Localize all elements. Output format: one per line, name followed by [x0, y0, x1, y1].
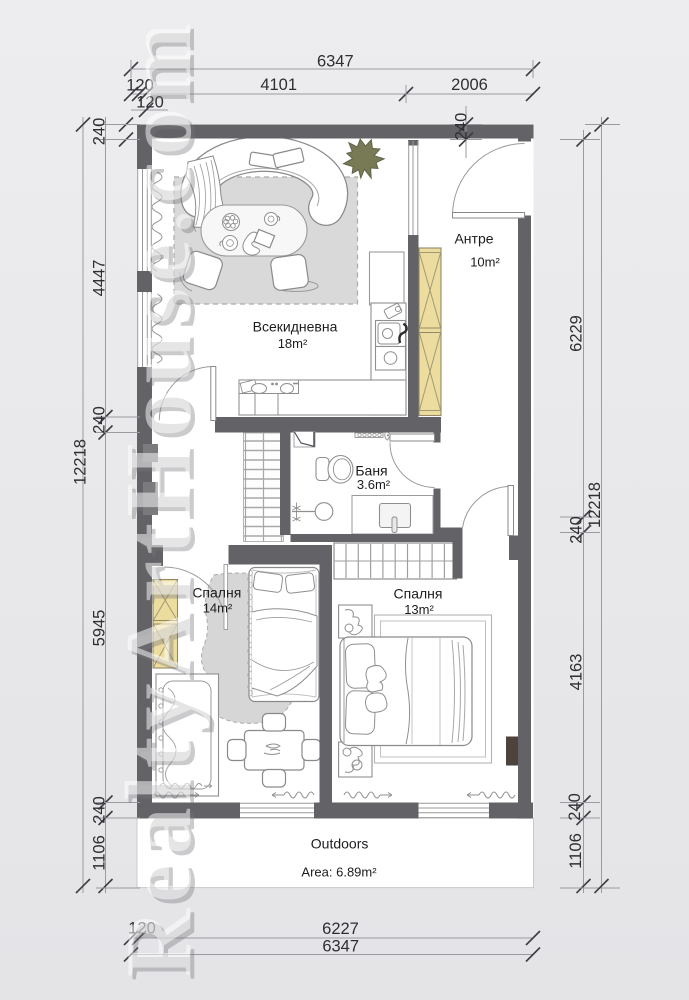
- svg-text:6347: 6347: [317, 53, 354, 71]
- svg-text:5945: 5945: [91, 610, 109, 647]
- svg-text:18m²: 18m²: [278, 336, 308, 351]
- svg-text:6227: 6227: [322, 920, 359, 938]
- svg-text:Area: 6.89m²: Area: 6.89m²: [301, 865, 377, 880]
- svg-text:Антре: Антре: [454, 231, 493, 247]
- svg-text:240: 240: [91, 406, 109, 434]
- svg-text:2006: 2006: [451, 76, 488, 94]
- svg-text:1106: 1106: [567, 833, 585, 868]
- svg-text:12218: 12218: [72, 439, 90, 485]
- svg-text:10m²: 10m²: [470, 255, 500, 270]
- svg-text:12218: 12218: [586, 482, 604, 528]
- svg-text:6347: 6347: [322, 938, 359, 956]
- svg-text:240: 240: [568, 516, 586, 544]
- svg-text:4101: 4101: [260, 76, 297, 94]
- svg-text:1106: 1106: [91, 835, 109, 870]
- svg-text:Всекидневна: Всекидневна: [253, 319, 338, 335]
- svg-text:RealtyArtHouse.com: RealtyArtHouse.com: [107, 17, 211, 977]
- svg-text:3.6m²: 3.6m²: [357, 477, 391, 492]
- svg-text:4447: 4447: [91, 260, 109, 297]
- svg-text:240: 240: [566, 793, 584, 821]
- svg-text:240: 240: [91, 796, 109, 824]
- svg-text:Спалня: Спалня: [394, 586, 443, 602]
- svg-text:13m²: 13m²: [404, 602, 434, 617]
- svg-text:4163: 4163: [568, 654, 586, 691]
- svg-text:240: 240: [453, 113, 471, 141]
- svg-text:240: 240: [91, 118, 109, 146]
- svg-text:6229: 6229: [568, 315, 586, 352]
- svg-text:Outdoors: Outdoors: [311, 836, 369, 852]
